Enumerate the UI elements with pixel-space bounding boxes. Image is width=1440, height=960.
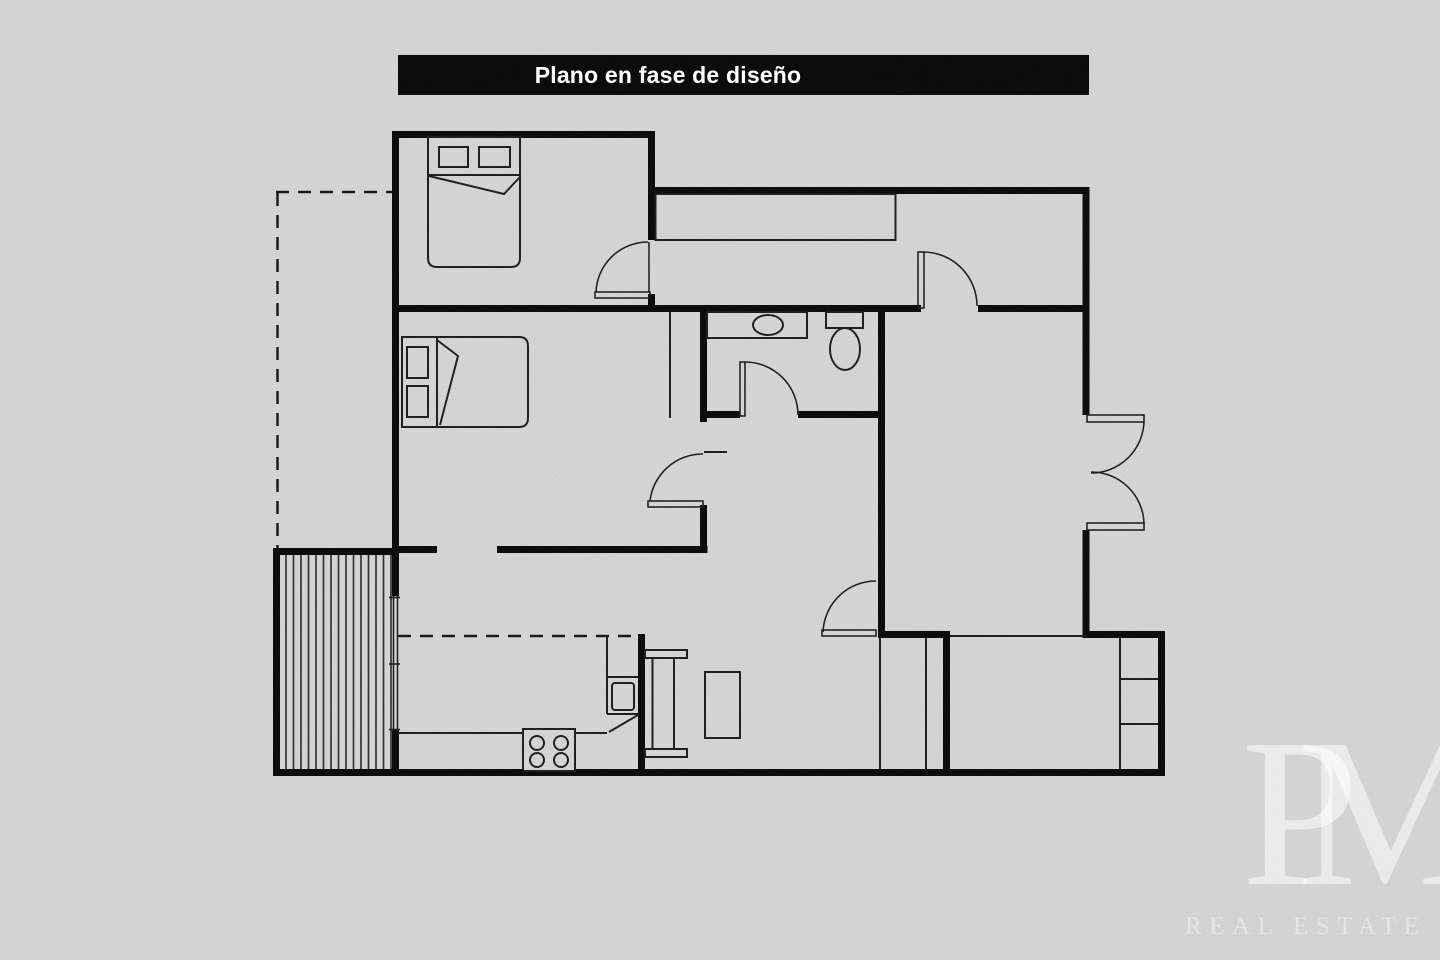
partitions — [656, 194, 1088, 770]
brand-watermark: PM REAL ESTATE — [1183, 720, 1421, 941]
door-bathroom — [740, 362, 798, 416]
oven-icon — [612, 683, 634, 710]
floor-plan-page: Plano en fase de diseño PM REAL ESTATE — [0, 0, 1440, 960]
walls — [273, 131, 1165, 776]
toilet-icon — [826, 312, 863, 370]
stove-icon — [523, 729, 575, 771]
sink-vanity-icon — [707, 312, 807, 338]
bathroom — [707, 312, 863, 370]
brand-subtitle: REAL ESTATE — [1183, 913, 1429, 941]
title-banner-text: Plano en fase de diseño — [398, 55, 938, 95]
french-doors — [1087, 415, 1144, 530]
proposed-extension-outline — [276, 192, 399, 549]
balcony-deck — [281, 555, 392, 769]
wardrobe-icon — [1120, 638, 1158, 770]
door-living-room — [918, 252, 977, 308]
door-bedroom-2 — [648, 454, 703, 507]
door-bedroom-1 — [595, 242, 650, 298]
hall-closet-icon — [656, 194, 896, 240]
door-rear-room — [822, 581, 876, 636]
title-banner: Plano en fase de diseño — [398, 55, 1089, 95]
brand-monogram: PM — [1183, 720, 1440, 907]
shelf-unit-icon — [645, 650, 687, 757]
coffee-table-icon — [705, 672, 740, 738]
bed-icon-bedroom-2 — [402, 337, 528, 427]
kitchen — [398, 636, 638, 771]
bed-icon-bedroom-1 — [428, 137, 520, 267]
